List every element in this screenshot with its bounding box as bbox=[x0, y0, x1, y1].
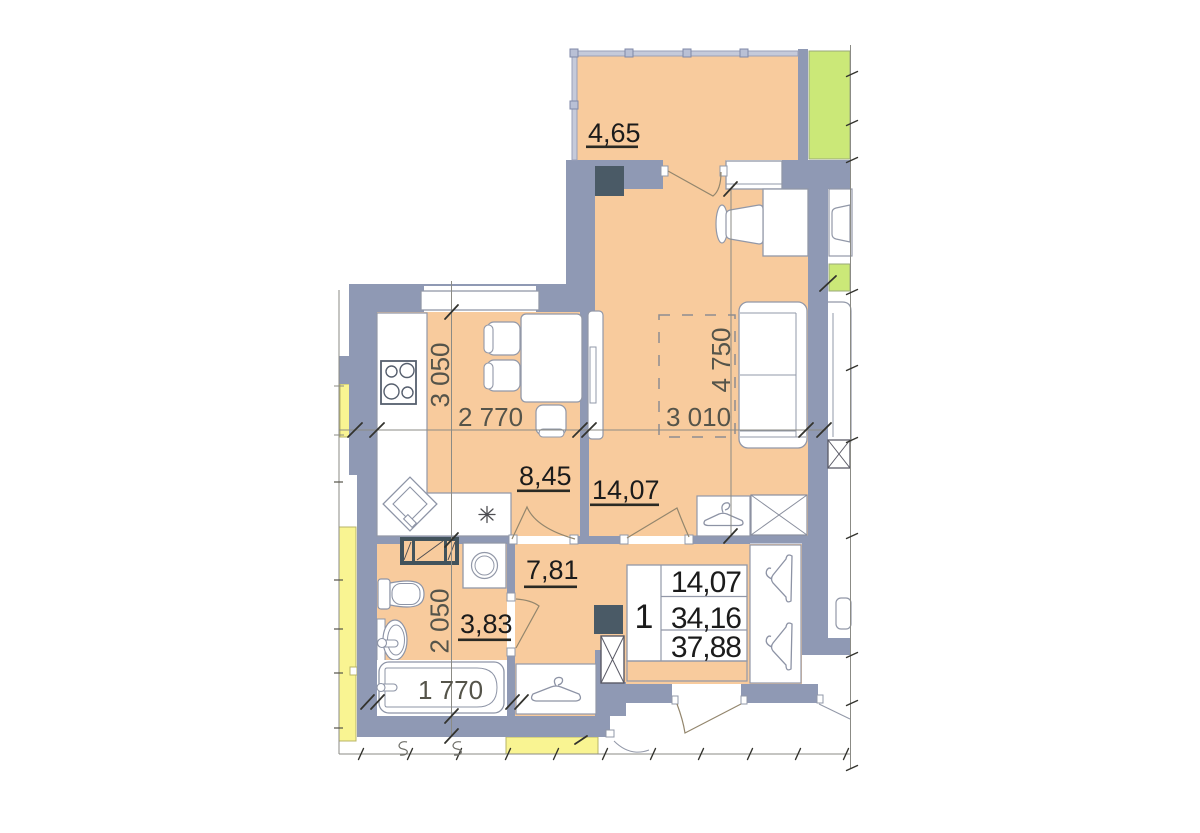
svg-text:37,88: 37,88 bbox=[671, 631, 741, 664]
svg-text:3 010: 3 010 bbox=[666, 402, 731, 432]
svg-text:7,81: 7,81 bbox=[526, 555, 579, 585]
svg-text:14,07: 14,07 bbox=[592, 475, 660, 505]
svg-text:3,83: 3,83 bbox=[460, 609, 513, 639]
svg-text:2 050: 2 050 bbox=[425, 588, 455, 653]
svg-text:14,07: 14,07 bbox=[671, 566, 741, 599]
svg-text:8,45: 8,45 bbox=[519, 461, 572, 491]
svg-text:1: 1 bbox=[635, 598, 654, 636]
svg-text:3 050: 3 050 bbox=[425, 342, 455, 407]
svg-text:4,65: 4,65 bbox=[588, 118, 641, 148]
svg-text:2 770: 2 770 bbox=[458, 402, 523, 432]
svg-text:4 750: 4 750 bbox=[706, 327, 736, 392]
svg-text:1 770: 1 770 bbox=[418, 675, 483, 705]
